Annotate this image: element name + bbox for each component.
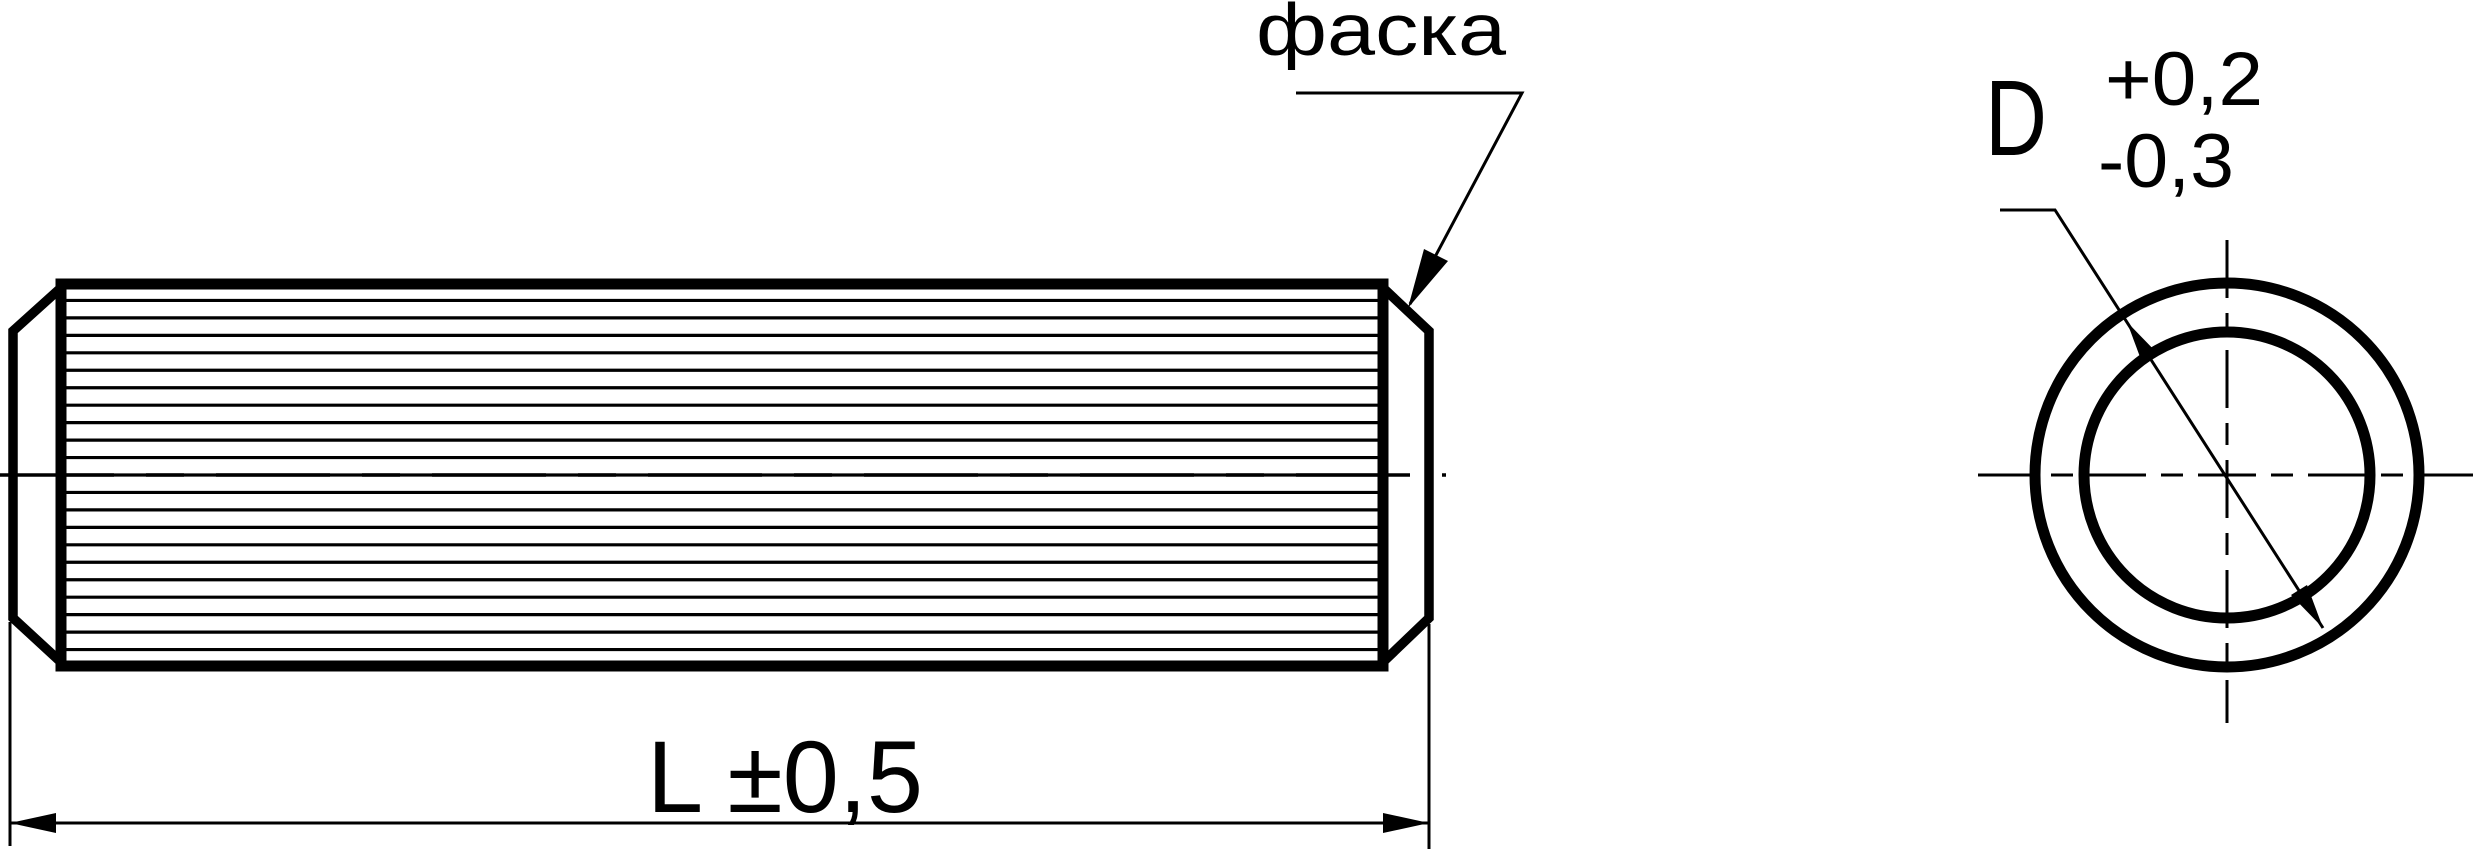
diameter-label: D [1985,57,2047,178]
length-dim-label: L ±0,5 [647,720,923,834]
chamfer-label: фаска [1256,0,1506,71]
technical-drawing-page: фаска L ±0,5 D +0,2 -0,3 [0,0,2478,849]
tolerance-upper-label: +0,2 [2105,37,2263,122]
dowel-technical-drawing: фаска L ±0,5 D +0,2 -0,3 [0,0,2478,849]
tolerance-lower-label: -0,3 [2098,119,2234,204]
